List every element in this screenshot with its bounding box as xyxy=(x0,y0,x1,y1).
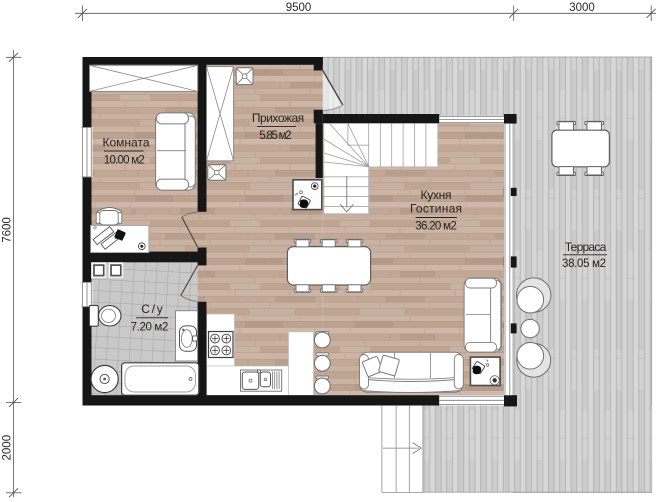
svg-text:5.85 м2: 5.85 м2 xyxy=(259,130,291,142)
svg-text:Терраса: Терраса xyxy=(565,240,607,254)
svg-text:Комната: Комната xyxy=(103,136,150,150)
svg-text:Гостиная: Гостиная xyxy=(410,202,462,216)
svg-text:38.05 м2: 38.05 м2 xyxy=(562,258,606,270)
svg-text:2000: 2000 xyxy=(2,435,14,461)
svg-text:36.20 м2: 36.20 м2 xyxy=(415,220,457,232)
svg-text:9500: 9500 xyxy=(286,2,312,14)
svg-text:С/у: С/у xyxy=(141,302,163,316)
svg-text:Прихожая: Прихожая xyxy=(252,111,304,125)
svg-text:7.20 м2: 7.20 м2 xyxy=(131,321,169,333)
svg-text:7600: 7600 xyxy=(2,217,14,243)
svg-text:Кухня: Кухня xyxy=(421,188,452,202)
svg-text:3000: 3000 xyxy=(569,2,595,14)
svg-text:10.00 м2: 10.00 м2 xyxy=(104,155,145,167)
